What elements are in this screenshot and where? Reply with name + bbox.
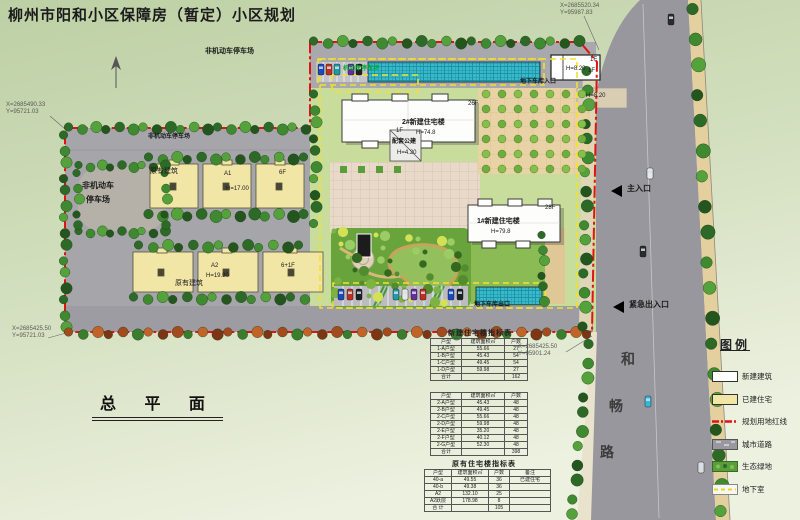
site-plan-sheet: 柳州市阳和小区保障房（暂定）小区规划 X=2685520.34Y=95987.8… xyxy=(0,0,800,520)
table-cell: 40-b xyxy=(425,484,452,491)
table-cell: A2 xyxy=(425,491,452,498)
garden-shrub-icon xyxy=(345,240,355,250)
tree-icon xyxy=(539,296,549,306)
label-nonmotor-lot-2: 停车场 xyxy=(86,196,110,205)
table-row: 户型建筑面积㎡户数 xyxy=(431,393,528,400)
car-windshield xyxy=(319,67,323,70)
orchard-tree-icon xyxy=(514,150,522,158)
red-line-swatch-icon xyxy=(712,416,738,427)
table-cell: 48 xyxy=(505,435,528,442)
table-row: 2-F户型40.1248 xyxy=(431,435,528,442)
garden-shrub-icon xyxy=(461,264,469,272)
tree-icon xyxy=(118,227,127,236)
tree-icon xyxy=(388,37,397,46)
new-housing-table-2: 户型建筑面积㎡户数2-A户型45.43482-B户型49.45482-C户型55… xyxy=(430,392,528,456)
label-a1: A1 xyxy=(224,171,231,178)
tree-icon xyxy=(182,212,192,222)
legend-title: 图例 xyxy=(720,336,800,353)
tree-icon xyxy=(383,328,392,337)
car-windshield xyxy=(327,67,331,70)
label-a1-floors: 6F xyxy=(279,170,286,177)
label-emergency-entrance: 紧急出入口 xyxy=(629,301,669,310)
orchard-tree-icon xyxy=(498,120,506,128)
tree-icon xyxy=(299,153,308,162)
tree-icon xyxy=(309,174,318,183)
tree-icon xyxy=(138,227,146,235)
table-cell xyxy=(452,505,489,512)
table-cell: 2-B户型 xyxy=(431,407,462,414)
new-housing-table-1: 户型建筑面积㎡户数1-A户型55.66271-B户型45.43541-C户型49… xyxy=(430,338,528,381)
tree-icon xyxy=(411,326,422,337)
orchard-tree-icon xyxy=(530,120,538,128)
car-windshield xyxy=(403,292,407,295)
table-cell: 户型 xyxy=(425,470,452,477)
tree-icon xyxy=(101,125,110,134)
tree-icon xyxy=(59,257,68,266)
table-row: 1-D户型59.9827 xyxy=(431,367,528,374)
table-cell: 户数 xyxy=(505,339,528,346)
table-row: 2-C户型55.6648 xyxy=(431,414,528,421)
label-tower2-height: H=74.8 xyxy=(416,130,436,137)
tree-icon xyxy=(60,229,70,239)
car-windshield xyxy=(648,171,652,174)
car-icon xyxy=(326,64,332,75)
sheet-name: 总 平 面 xyxy=(92,390,223,421)
label-a2-height: H=19.90 xyxy=(206,273,229,280)
tree-icon xyxy=(309,37,318,46)
tree-icon xyxy=(534,38,545,49)
car-icon xyxy=(448,289,454,300)
eco-green-swatch-icon xyxy=(712,461,738,472)
tree-icon xyxy=(539,282,548,291)
garden-shrub-icon xyxy=(430,297,440,307)
garden-shrub-icon xyxy=(366,279,376,289)
tree-icon xyxy=(74,194,84,204)
table-cell: 48 xyxy=(505,442,528,449)
car-windshield xyxy=(699,465,703,468)
tree-icon xyxy=(363,36,373,46)
orchard-tree-icon xyxy=(514,120,522,128)
car-windshield xyxy=(348,292,352,295)
tree-icon xyxy=(174,243,183,252)
tree-icon xyxy=(162,239,173,250)
tree-icon xyxy=(59,131,68,140)
car-icon xyxy=(457,289,463,300)
tree-icon xyxy=(455,38,466,49)
orchard-tree-icon xyxy=(578,120,586,128)
tree-icon xyxy=(310,190,320,200)
tree-icon xyxy=(118,327,128,337)
orchard-tree-icon xyxy=(546,135,554,143)
tree-icon xyxy=(249,151,260,162)
tree-icon xyxy=(343,330,352,339)
garden-shrub-icon xyxy=(458,275,468,285)
orchard-tree-icon xyxy=(530,90,538,98)
tree-icon xyxy=(60,267,70,277)
tree-icon xyxy=(59,174,68,183)
tree-icon xyxy=(397,330,407,340)
garage-ramp-north xyxy=(368,62,540,82)
tree-icon xyxy=(292,329,303,340)
table-cell: 59.98 xyxy=(462,421,505,428)
table-cell: 已建住宅 xyxy=(510,477,551,484)
tree-icon xyxy=(260,155,269,164)
table-cell xyxy=(510,505,551,512)
tree-icon xyxy=(143,295,153,305)
tree-icon xyxy=(73,211,81,219)
tree-icon xyxy=(577,407,588,418)
table-cell: 合计 xyxy=(431,374,462,381)
tree-icon xyxy=(162,221,171,230)
tree-icon xyxy=(64,328,73,337)
tree-icon xyxy=(539,255,549,265)
tree-icon xyxy=(242,239,253,250)
table-row: 户型建筑面积㎡户数备注 xyxy=(425,470,551,477)
orchard-tree-icon xyxy=(562,120,570,128)
orchard-tree-icon xyxy=(482,150,490,158)
road-name-char-1: 和 xyxy=(621,349,635,369)
tree-icon xyxy=(235,211,246,222)
road-name-char-3: 路 xyxy=(600,442,614,462)
table-cell: 户数 xyxy=(489,470,510,477)
central-plaza xyxy=(330,162,480,232)
table-row: 1-C户型49.4554 xyxy=(431,360,528,367)
tree-icon xyxy=(581,186,592,197)
garden-shrub-icon xyxy=(332,229,337,234)
tree-icon xyxy=(59,213,68,222)
orchard-tree-icon xyxy=(578,150,586,158)
garden-shrub-icon xyxy=(454,251,462,259)
table-cell: 55.66 xyxy=(462,346,505,353)
tree-icon xyxy=(144,209,154,219)
tree-icon xyxy=(506,39,515,48)
tree-icon xyxy=(106,164,114,172)
tree-icon xyxy=(86,163,95,172)
table-cell: 35.20 xyxy=(462,428,505,435)
tree-icon xyxy=(129,293,138,302)
tree-icon xyxy=(538,231,546,239)
tree-icon xyxy=(694,114,707,127)
tree-icon xyxy=(568,495,578,505)
table-cell: 36 xyxy=(489,477,510,484)
tree-icon xyxy=(264,122,274,132)
garden-shrub-icon xyxy=(437,236,447,246)
label-existing-building-1: 原有建筑 xyxy=(150,168,178,176)
orchard-tree-icon xyxy=(498,135,506,143)
table-cell: 162 xyxy=(505,374,528,381)
tree-icon xyxy=(539,246,548,255)
tree-icon xyxy=(263,330,272,339)
car-icon xyxy=(640,246,646,257)
tree-icon xyxy=(538,272,546,280)
garden-shrub-icon xyxy=(391,282,399,290)
tree-icon xyxy=(221,209,231,219)
table-row: 2-E户型35.2048 xyxy=(431,428,528,435)
car-icon xyxy=(334,64,340,75)
table-cell: 49.38 xyxy=(452,484,489,491)
legend-item-basement: 地下室 xyxy=(712,484,800,495)
table-cell: 2-G户型 xyxy=(431,442,462,449)
table-row: A2132.1025 xyxy=(425,491,551,498)
label-annex-name: 配套公建 xyxy=(392,139,416,146)
tree-icon xyxy=(282,242,293,253)
tree-icon xyxy=(442,36,452,46)
orchard-tree-icon xyxy=(578,90,586,98)
tree-icon xyxy=(238,330,248,340)
tree-icon xyxy=(300,295,310,305)
tree-icon xyxy=(118,161,127,170)
tree-icon xyxy=(158,330,168,340)
tree-icon xyxy=(213,123,222,132)
tree-icon xyxy=(161,211,169,219)
orchard-tree-icon xyxy=(514,105,522,113)
garden-shrub-icon xyxy=(338,227,348,237)
tree-icon xyxy=(176,125,185,134)
garden-shrub-icon xyxy=(334,277,342,285)
label-tower2-name: 2#新建住宅楼 xyxy=(402,119,445,127)
orchard-tree-icon xyxy=(514,90,522,98)
orchard-tree-icon xyxy=(546,165,554,173)
car-icon xyxy=(411,289,417,300)
tree-icon xyxy=(61,200,72,211)
car-windshield xyxy=(449,292,453,295)
table-cell: 2-E户型 xyxy=(431,428,462,435)
garden-shrub-icon xyxy=(402,285,407,290)
label-tower1-name: 1#新建住宅楼 xyxy=(477,218,520,226)
car-windshield xyxy=(646,399,650,402)
garden-shrub-icon xyxy=(447,238,455,246)
inner-south-road xyxy=(65,306,593,332)
orchard-tree-icon xyxy=(482,90,490,98)
label-tower2-floors: 26F xyxy=(468,101,478,108)
orchard-tree-icon xyxy=(482,105,490,113)
car-windshield xyxy=(641,249,645,252)
tree-icon xyxy=(134,241,143,250)
orchard-tree-icon xyxy=(498,165,506,173)
tree-icon xyxy=(275,294,286,305)
garden-shrub-icon xyxy=(412,247,420,255)
table-cell: 49.45 xyxy=(462,407,505,414)
tree-icon xyxy=(60,146,70,156)
tree-icon xyxy=(196,209,207,220)
table-cell: 1-D户型 xyxy=(431,367,462,374)
tree-icon xyxy=(144,328,153,337)
tree-icon xyxy=(309,135,318,144)
tree-icon xyxy=(197,152,207,162)
garden-shrub-icon xyxy=(426,273,434,281)
tree-icon xyxy=(573,441,583,451)
table-cell: 8 xyxy=(489,498,510,505)
new-housing-table-title: 新建住宅楼指标表 xyxy=(448,328,512,338)
tree-icon xyxy=(249,208,261,220)
table-cell: 户型 xyxy=(431,393,462,400)
table-cell: 49.45 xyxy=(462,360,505,367)
garden-shrub-icon xyxy=(444,249,454,259)
tree-icon xyxy=(571,474,583,486)
label-service-floor-a: 1F xyxy=(590,57,597,64)
garden-shrub-icon xyxy=(416,237,421,242)
table-cell: 59.98 xyxy=(462,367,505,374)
label-annex-floor: 1F xyxy=(396,128,403,135)
table-cell: 49.55 xyxy=(452,477,489,484)
tree-icon xyxy=(323,39,333,49)
tree-icon xyxy=(235,155,245,165)
tree-icon xyxy=(202,242,213,253)
tree-icon xyxy=(567,509,578,520)
car-windshield xyxy=(421,292,425,295)
table-cell: 25 xyxy=(489,491,510,498)
tree-icon xyxy=(416,35,427,46)
tree-icon xyxy=(162,184,171,193)
tree-icon xyxy=(481,39,491,49)
label-nonmotor-parking-top: 非机动车停车场 xyxy=(205,48,254,56)
tree-icon xyxy=(214,241,223,250)
tree-icon xyxy=(317,330,327,340)
table-cell: 户型 xyxy=(431,339,462,346)
tree-icon xyxy=(129,162,139,172)
tree-icon xyxy=(402,39,412,49)
tree-icon xyxy=(129,228,139,238)
tree-icon xyxy=(268,240,278,250)
tree-icon xyxy=(696,144,710,158)
label-service-floor-b: 1F xyxy=(588,68,595,75)
tree-icon xyxy=(309,219,318,228)
tree-icon xyxy=(162,194,172,204)
tree-icon xyxy=(531,329,542,340)
garden-shrub-icon xyxy=(381,246,386,251)
garden-shrub-icon xyxy=(352,253,362,263)
tree-icon xyxy=(132,329,143,340)
tree-icon xyxy=(574,35,585,46)
tree-icon xyxy=(691,58,705,72)
table-row: 合计162 xyxy=(431,374,528,381)
table-cell: 132.10 xyxy=(452,491,489,498)
car-icon xyxy=(393,289,399,300)
orchard-tree-icon xyxy=(562,150,570,158)
tree-icon xyxy=(546,37,555,46)
garden-shrub-icon xyxy=(359,266,369,276)
tree-icon xyxy=(91,121,102,132)
label-nonmotor-lot-1: 非机动车 xyxy=(82,182,114,191)
tree-icon xyxy=(183,155,192,164)
table-cell: 178.98 xyxy=(452,498,489,505)
tree-icon xyxy=(61,157,72,168)
tree-icon xyxy=(172,326,183,337)
table-row: 2-A户型45.4348 xyxy=(431,400,528,407)
garden-shrub-icon xyxy=(353,268,358,273)
table-row: A2跃层178.988 xyxy=(425,498,551,505)
car-icon xyxy=(698,462,704,473)
tree-icon xyxy=(286,293,295,302)
table-cell: 1-C户型 xyxy=(431,360,462,367)
tree-icon xyxy=(252,326,263,337)
tree-icon xyxy=(152,125,162,135)
tree-icon xyxy=(301,125,311,135)
tree-icon xyxy=(542,328,551,337)
tree-icon xyxy=(377,38,388,49)
tree-icon xyxy=(198,327,208,337)
tree-icon xyxy=(583,358,594,369)
orchard-tree-icon xyxy=(498,150,506,158)
label-existing-building-2: 原有建筑 xyxy=(175,280,203,288)
coordinate-top-right: X=2685520.34Y=95987.83 xyxy=(560,3,599,17)
city-road-swatch-icon xyxy=(712,439,738,450)
table-cell: 45.43 xyxy=(462,353,505,360)
orchard-tree-icon xyxy=(530,165,538,173)
table-cell: 48 xyxy=(505,407,528,414)
tree-icon xyxy=(224,328,233,337)
tree-icon xyxy=(168,295,177,304)
car-windshield xyxy=(335,67,339,70)
orchard-tree-icon xyxy=(530,105,538,113)
tree-icon xyxy=(578,322,588,332)
table-cell: 45.43 xyxy=(462,400,505,407)
page-title: 柳州市阳和小区保障房（暂定）小区规划 xyxy=(8,8,296,25)
tree-icon xyxy=(311,201,322,212)
tree-icon xyxy=(260,212,270,222)
table-cell: 2-C户型 xyxy=(431,414,462,421)
car-icon xyxy=(668,14,674,25)
table-row: 合计398 xyxy=(431,449,528,456)
orchard-tree-icon xyxy=(530,150,538,158)
tree-icon xyxy=(705,311,719,325)
tree-icon xyxy=(172,151,183,162)
tree-icon xyxy=(77,125,87,135)
garden-shrub-icon xyxy=(339,242,344,247)
tree-icon xyxy=(165,121,176,132)
table-cell: 合 计 xyxy=(425,505,452,512)
tree-icon xyxy=(311,117,322,128)
tree-icon xyxy=(149,229,158,238)
label-service-height-b: H=8.20 xyxy=(586,93,606,100)
coordinate-bottom-left: X=2685425.50Y=95721.03 xyxy=(12,326,51,340)
tree-icon xyxy=(97,226,107,236)
tree-icon xyxy=(104,330,113,339)
tree-icon xyxy=(581,200,593,212)
table-cell: 52.30 xyxy=(462,442,505,449)
tree-icon xyxy=(222,153,231,162)
car-icon xyxy=(347,289,353,300)
orchard-tree-icon xyxy=(498,90,506,98)
orchard-tree-icon xyxy=(530,135,538,143)
table-cell: 备注 xyxy=(510,470,551,477)
tree-icon xyxy=(235,291,246,302)
label-a1-height: H=17.00 xyxy=(226,186,249,193)
orchard-tree-icon xyxy=(482,120,490,128)
table-cell xyxy=(510,484,551,491)
tree-icon xyxy=(278,327,288,337)
tree-icon xyxy=(582,372,594,384)
tree-icon xyxy=(576,425,588,437)
table-cell: 2-A户型 xyxy=(431,400,462,407)
garden-shrub-icon xyxy=(367,294,372,299)
tree-icon xyxy=(311,161,322,172)
tree-icon xyxy=(584,339,594,349)
table-cell: 40-a xyxy=(425,477,452,484)
legend-item-red-line: 规划用地红线 xyxy=(712,416,800,427)
table-row: 40-b49.3836 xyxy=(425,484,551,491)
orchard-tree-icon xyxy=(514,165,522,173)
tree-icon xyxy=(578,393,588,403)
tree-icon xyxy=(580,234,591,245)
orchard-tree-icon xyxy=(562,105,570,113)
table-cell: 2-D户型 xyxy=(431,421,462,428)
tree-icon xyxy=(92,326,103,337)
orchard-tree-icon xyxy=(546,120,554,128)
tree-icon xyxy=(371,329,382,340)
table-row: 2-G户型52.3048 xyxy=(431,442,528,449)
tree-icon xyxy=(210,210,222,222)
